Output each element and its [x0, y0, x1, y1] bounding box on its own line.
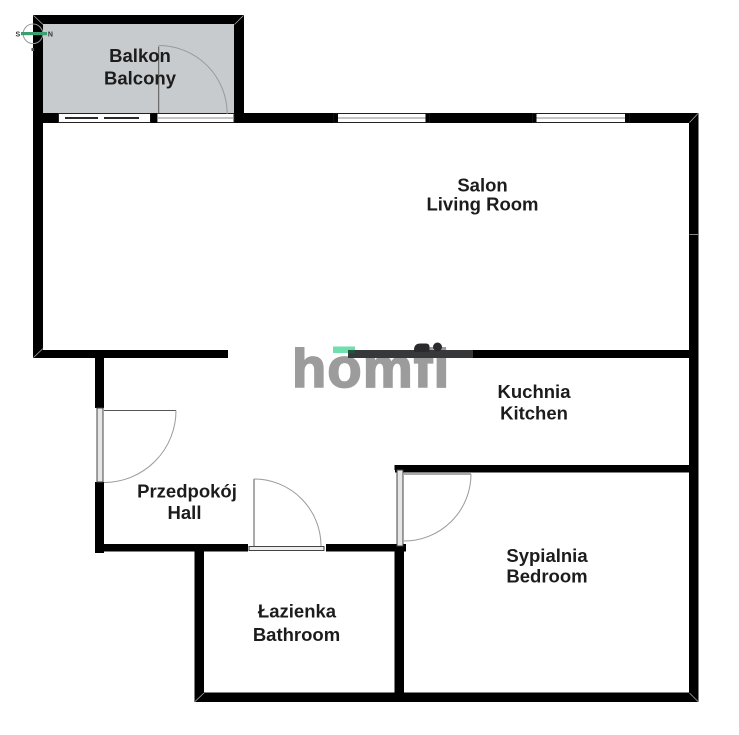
svg-text:Bedroom: Bedroom	[506, 566, 587, 587]
svg-text:Przedpokój: Przedpokój	[137, 480, 237, 501]
svg-text:Salon: Salon	[457, 174, 507, 195]
svg-text:S: S	[15, 32, 20, 39]
svg-text:Kuchnia: Kuchnia	[498, 381, 572, 402]
svg-text:Łazienka: Łazienka	[258, 601, 337, 622]
svg-text:Bathroom: Bathroom	[253, 624, 340, 645]
svg-text:Balcony: Balcony	[104, 67, 177, 88]
svg-text:Balkon: Balkon	[109, 45, 171, 66]
svg-text:Living Room: Living Room	[426, 194, 538, 215]
svg-text:Sypialnia: Sypialnia	[506, 545, 588, 566]
svg-text:Kitchen: Kitchen	[500, 403, 568, 424]
svg-text:Hall: Hall	[168, 502, 202, 523]
svg-text:N: N	[48, 32, 53, 39]
